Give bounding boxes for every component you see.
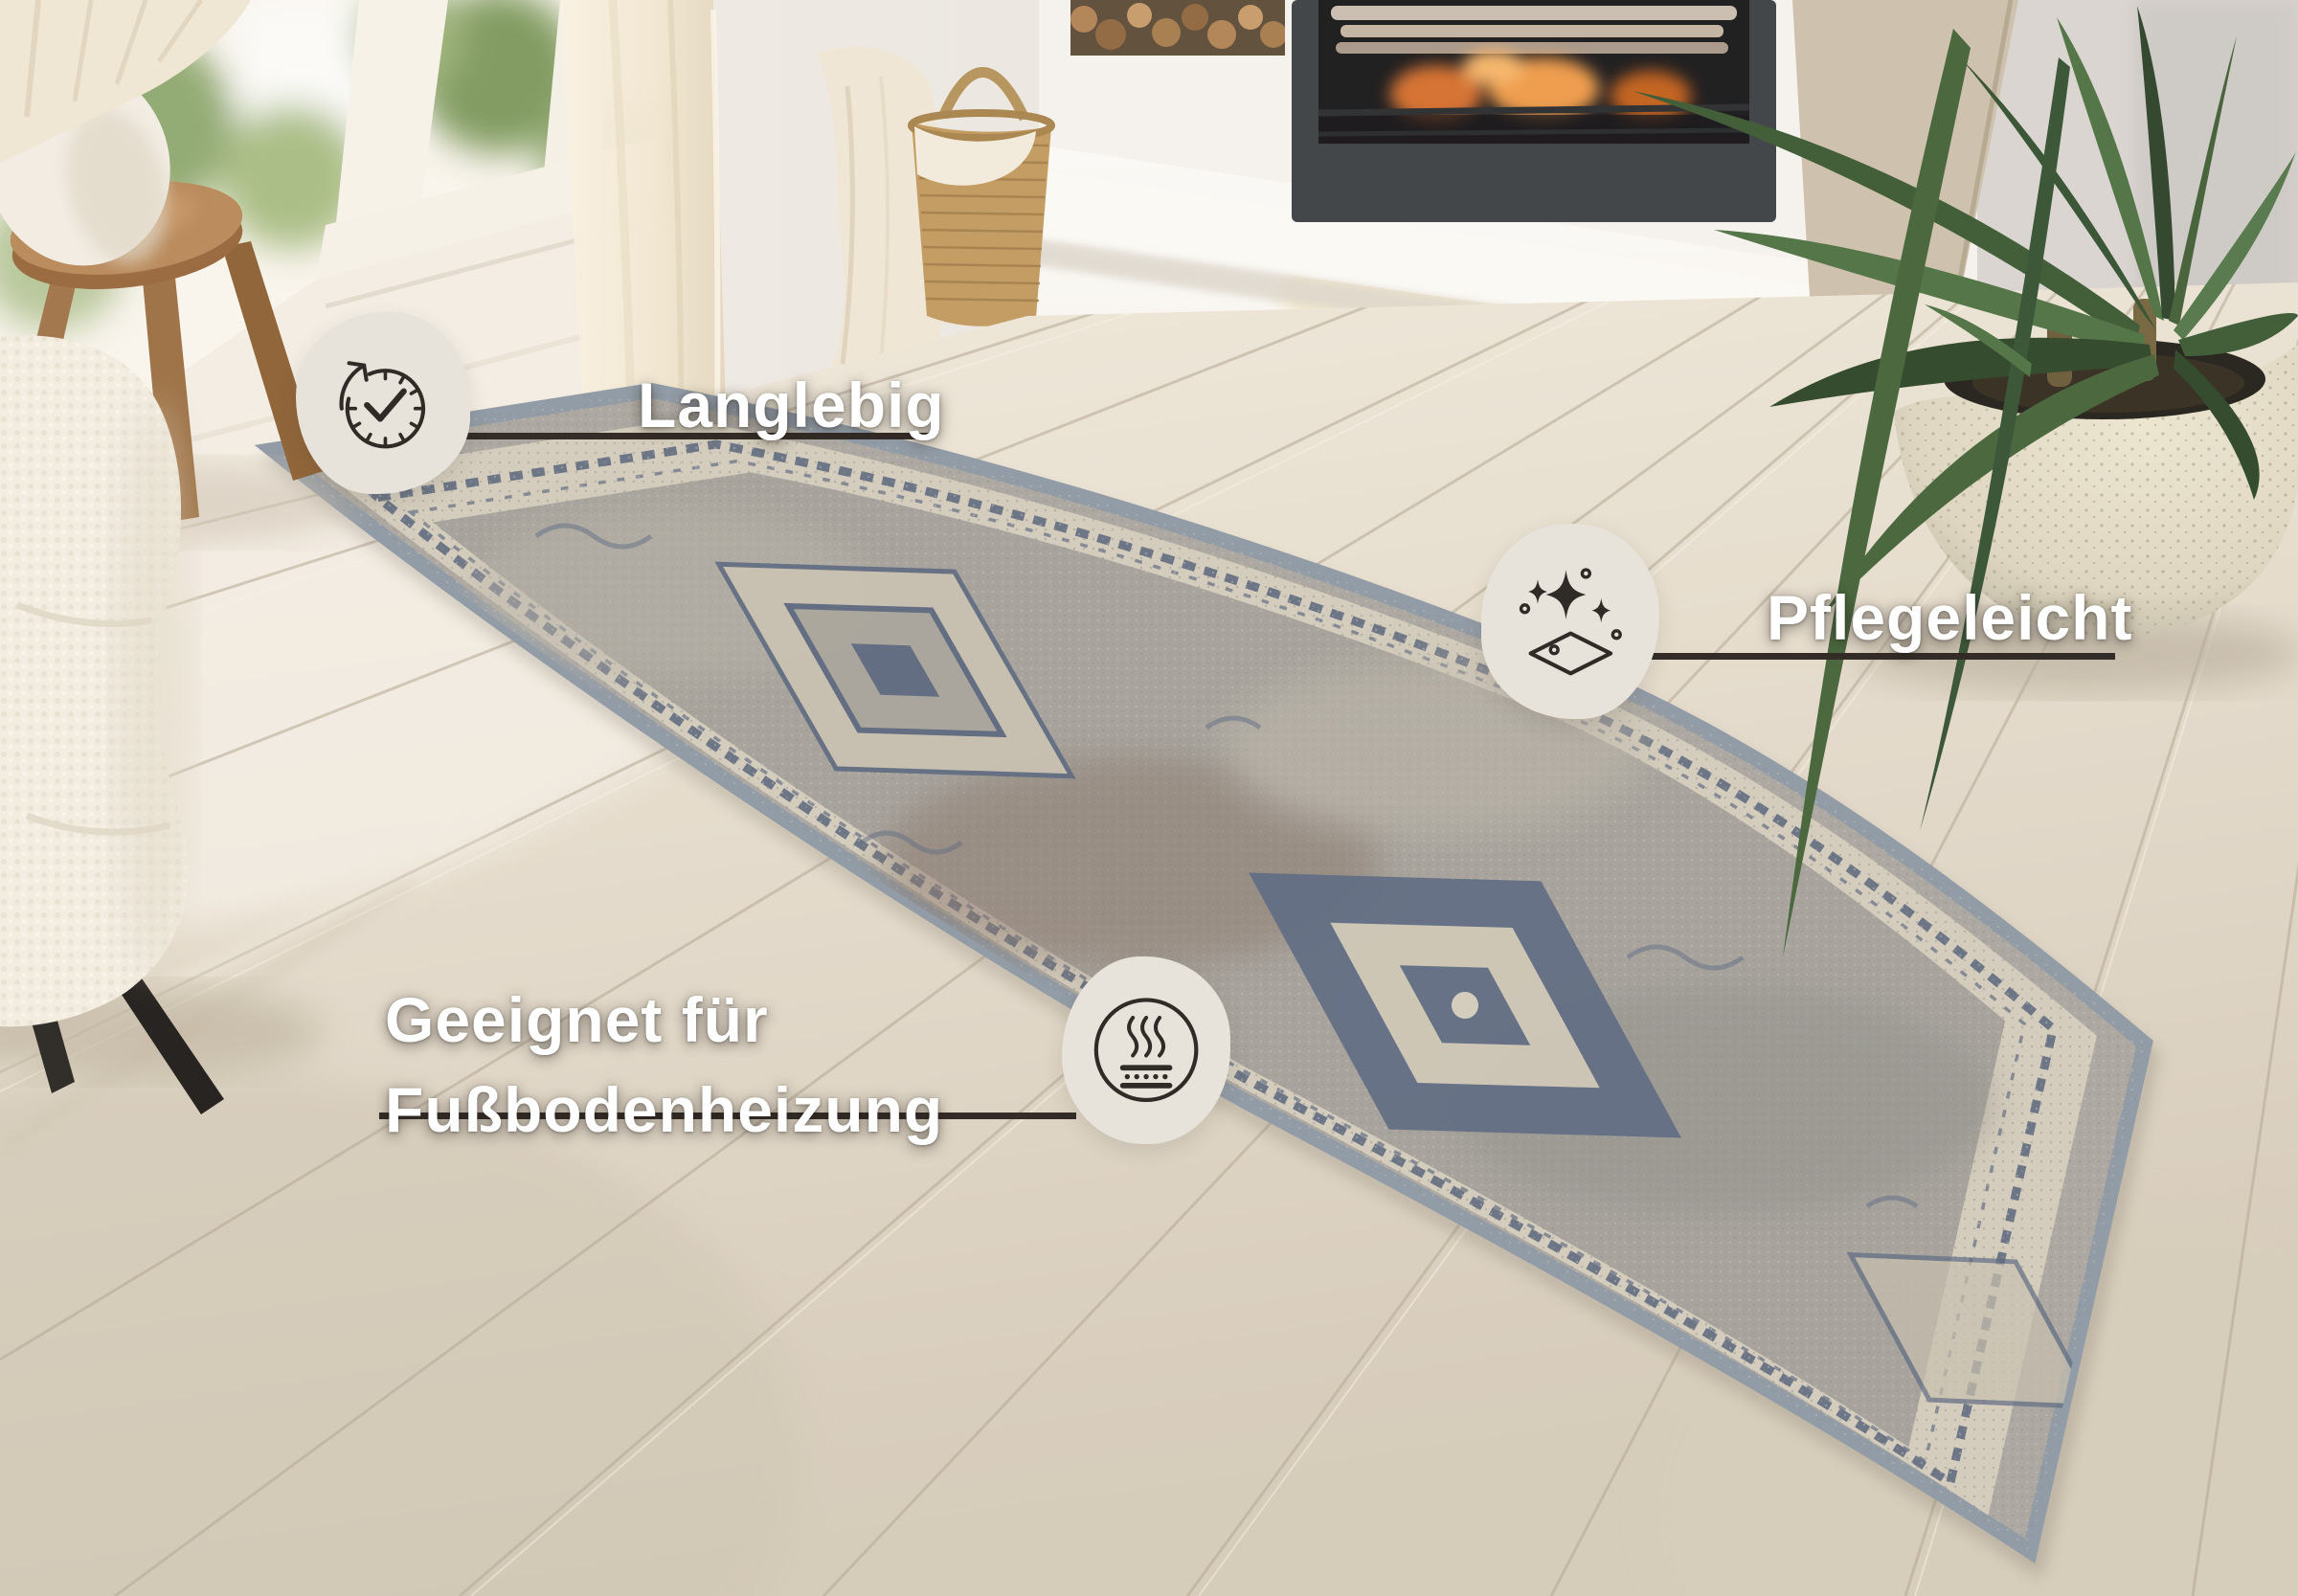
- callout-easy-care-label: Pflegeleicht: [1767, 586, 2132, 649]
- callout-heating-badge: [1062, 956, 1230, 1144]
- callout-durability-label: Langlebig: [638, 373, 945, 437]
- living-room-scene: [0, 0, 2298, 1596]
- callout-durability-badge: [296, 312, 470, 494]
- callout-heating-label: Geeignet für Fußbodenheizung: [385, 988, 943, 1141]
- rug-product-photo: Langlebig Pflegeleicht: [0, 0, 2298, 1596]
- clock-refresh-check-icon: [326, 343, 440, 462]
- sparkle-clean-surface-icon: [1512, 557, 1630, 686]
- callout-easy-care-line: [1639, 653, 2115, 660]
- callout-easy-care-badge: [1481, 524, 1659, 719]
- underfloor-heating-icon: [1091, 988, 1202, 1112]
- callout-heating-label-line2: Fußbodenheizung: [385, 1078, 943, 1141]
- callout-heating-label-line1: Geeignet für: [385, 984, 769, 1055]
